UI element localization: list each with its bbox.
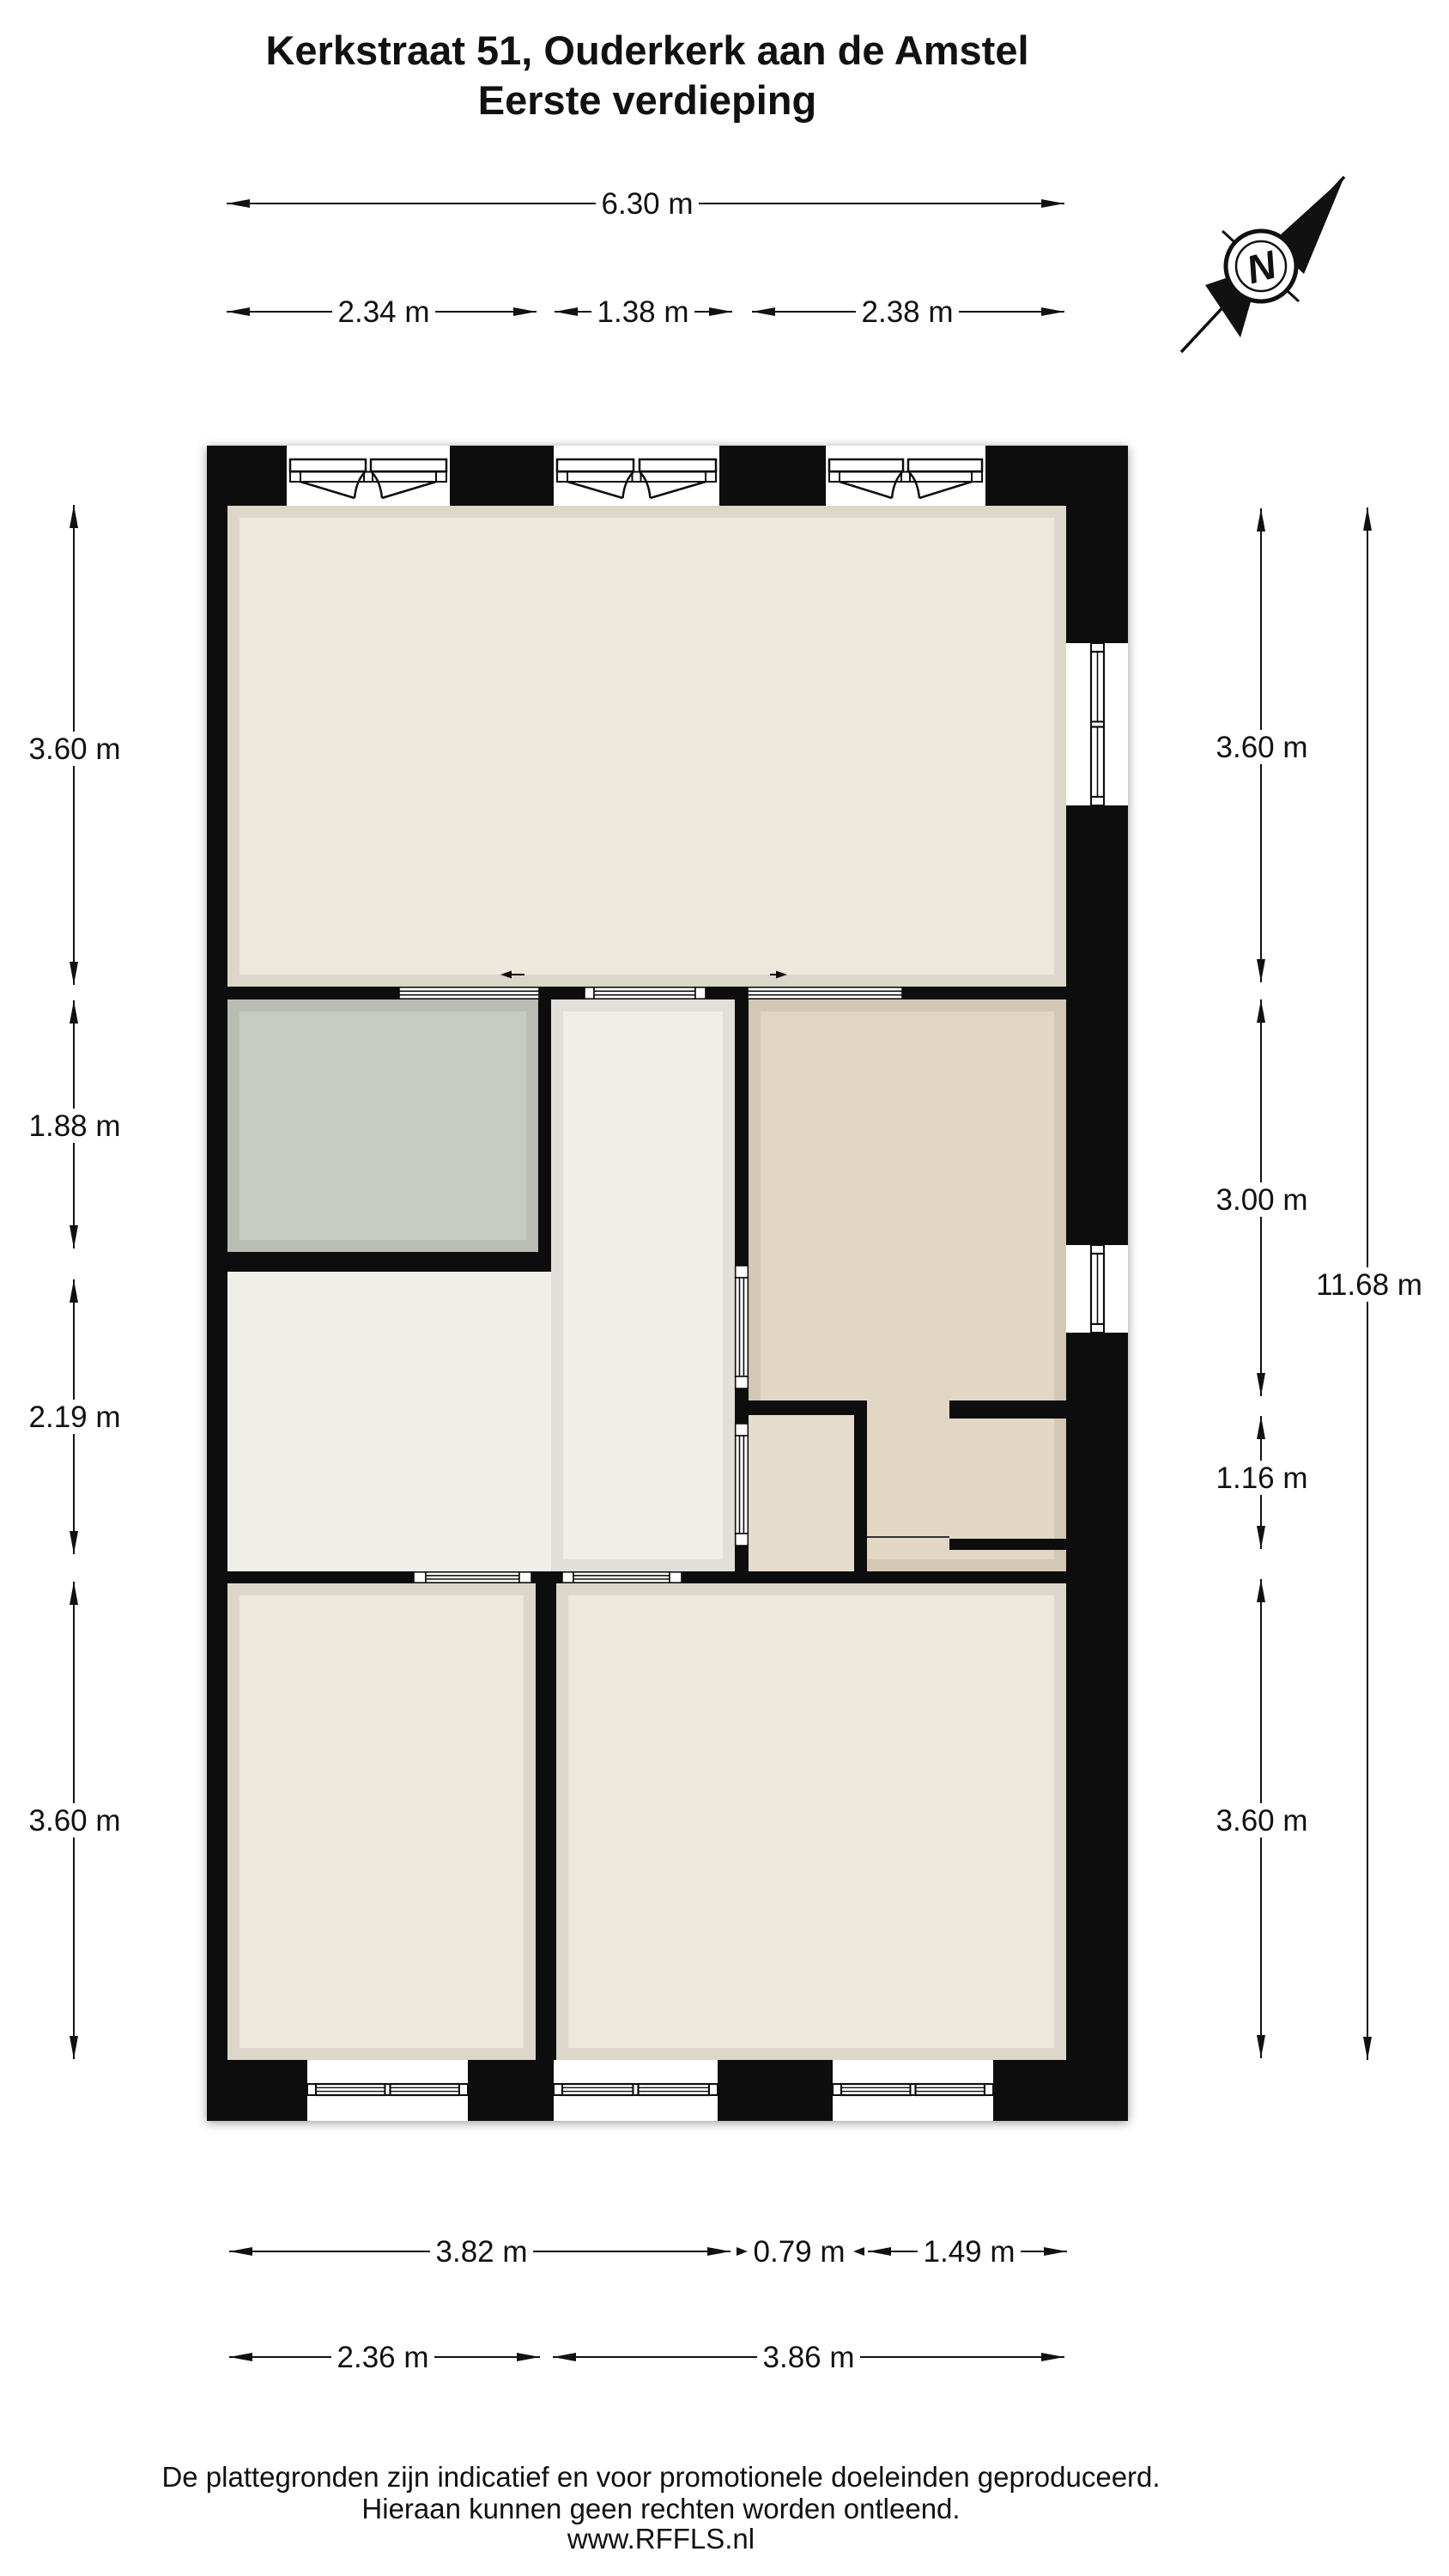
- svg-text:1.49 m: 1.49 m: [924, 2235, 1016, 2269]
- svg-text:3.82 m: 3.82 m: [436, 2235, 528, 2269]
- svg-text:3.60 m: 3.60 m: [29, 732, 121, 766]
- svg-text:2.36 m: 2.36 m: [337, 2341, 429, 2374]
- svg-text:1.88 m: 1.88 m: [29, 1109, 121, 1143]
- svg-text:Eerste verdieping: Eerste verdieping: [478, 77, 816, 123]
- svg-text:3.00 m: 3.00 m: [1216, 1183, 1308, 1217]
- svg-text:3.86 m: 3.86 m: [763, 2341, 855, 2374]
- svg-text:2.38 m: 2.38 m: [862, 295, 954, 329]
- svg-text:3.60 m: 3.60 m: [29, 1804, 121, 1838]
- svg-text:2.19 m: 2.19 m: [29, 1400, 121, 1434]
- svg-text:3.60 m: 3.60 m: [1216, 731, 1308, 764]
- svg-text:6.30 m: 6.30 m: [602, 187, 694, 221]
- svg-text:11.68 m: 11.68 m: [1316, 1268, 1422, 1302]
- svg-text:2.34 m: 2.34 m: [338, 295, 430, 329]
- svg-text:0.79 m: 0.79 m: [754, 2235, 846, 2269]
- svg-text:1.16 m: 1.16 m: [1216, 1461, 1308, 1495]
- svg-text:De plattegronden zijn indicati: De plattegronden zijn indicatief en voor…: [161, 2461, 1160, 2493]
- svg-text:1.38 m: 1.38 m: [597, 295, 689, 329]
- svg-text:www.RFFLS.nl: www.RFFLS.nl: [567, 2523, 755, 2555]
- svg-text:3.60 m: 3.60 m: [1216, 1804, 1308, 1838]
- svg-text:Kerkstraat 51, Ouderkerk aan d: Kerkstraat 51, Ouderkerk aan de Amstel: [265, 27, 1028, 73]
- svg-text:Hieraan kunnen geen rechten wo: Hieraan kunnen geen rechten worden ontle…: [361, 2493, 960, 2524]
